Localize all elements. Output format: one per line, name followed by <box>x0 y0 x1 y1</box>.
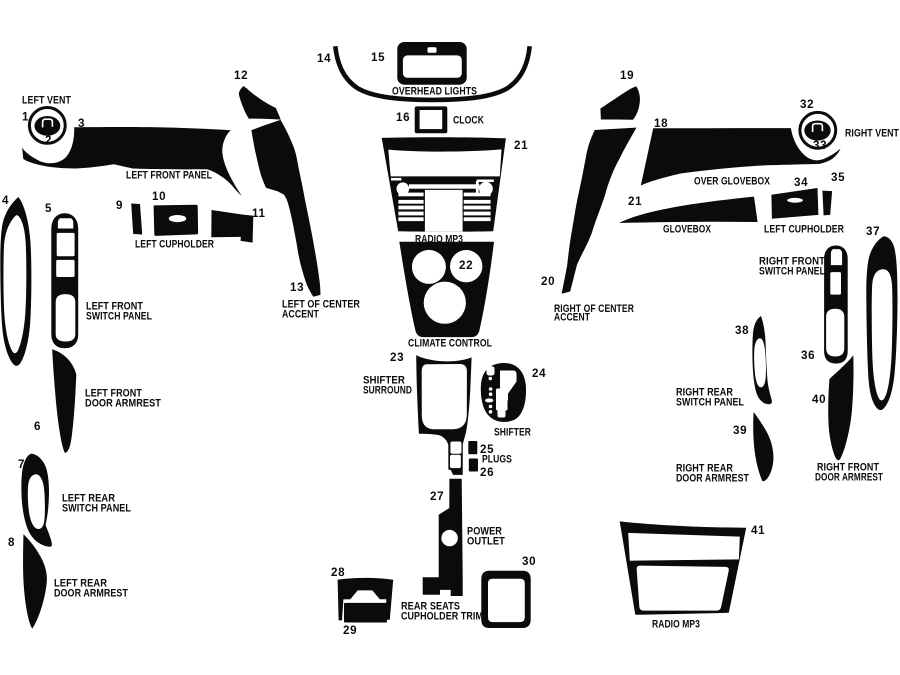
svg-text:25: 25 <box>480 443 494 456</box>
svg-text:RIGHT VENT: RIGHT VENT <box>845 128 899 140</box>
svg-text:39: 39 <box>733 424 747 437</box>
svg-text:16: 16 <box>396 111 410 124</box>
svg-text:6: 6 <box>34 420 41 433</box>
svg-text:8: 8 <box>8 536 15 549</box>
svg-text:27: 27 <box>430 490 444 503</box>
svg-text:LEFT CUPHOLDER: LEFT CUPHOLDER <box>764 224 844 236</box>
svg-text:LEFT CUPHOLDER: LEFT CUPHOLDER <box>135 239 214 251</box>
svg-text:SHIFTER: SHIFTER <box>494 427 531 439</box>
svg-text:RADIO MP3: RADIO MP3 <box>415 234 463 246</box>
svg-text:32: 32 <box>800 98 814 111</box>
svg-text:7: 7 <box>18 458 25 471</box>
svg-text:SWITCH PANEL: SWITCH PANEL <box>86 311 152 323</box>
svg-text:11: 11 <box>252 207 266 220</box>
svg-text:37: 37 <box>866 225 880 238</box>
svg-text:LEFT FRONT PANEL: LEFT FRONT PANEL <box>126 170 212 182</box>
svg-text:18: 18 <box>654 117 668 130</box>
svg-text:21: 21 <box>514 139 528 152</box>
svg-text:10: 10 <box>152 190 166 203</box>
svg-text:19: 19 <box>620 69 634 82</box>
svg-text:3: 3 <box>78 117 85 130</box>
svg-text:13: 13 <box>290 281 304 294</box>
svg-text:OUTLET: OUTLET <box>467 536 505 548</box>
svg-text:DOOR ARMREST: DOOR ARMREST <box>85 398 161 410</box>
svg-text:RADIO MP3: RADIO MP3 <box>652 619 700 631</box>
svg-text:20: 20 <box>541 275 555 288</box>
svg-text:14: 14 <box>317 52 331 65</box>
svg-text:12: 12 <box>234 69 248 82</box>
svg-text:40: 40 <box>812 393 826 406</box>
svg-text:OVERHEAD LIGHTS: OVERHEAD LIGHTS <box>392 86 477 98</box>
svg-text:26: 26 <box>480 466 494 479</box>
svg-text:24: 24 <box>532 367 546 380</box>
svg-text:36: 36 <box>801 349 815 362</box>
svg-text:SWITCH PANEL: SWITCH PANEL <box>676 397 744 409</box>
svg-text:LEFT VENT: LEFT VENT <box>22 95 71 107</box>
svg-text:38: 38 <box>735 324 749 337</box>
svg-text:41: 41 <box>751 524 765 537</box>
svg-text:DOOR ARMREST: DOOR ARMREST <box>54 588 128 600</box>
svg-text:33: 33 <box>813 139 827 152</box>
svg-text:4: 4 <box>2 194 9 207</box>
svg-text:21: 21 <box>628 195 642 208</box>
svg-text:SURROUND: SURROUND <box>363 385 412 397</box>
svg-text:35: 35 <box>831 171 845 184</box>
svg-text:15: 15 <box>371 51 385 64</box>
svg-text:5: 5 <box>45 202 52 215</box>
svg-text:30: 30 <box>522 555 536 568</box>
svg-text:CLIMATE CONTROL: CLIMATE CONTROL <box>408 338 492 350</box>
svg-text:2: 2 <box>45 134 52 147</box>
svg-text:9: 9 <box>116 199 123 212</box>
svg-text:34: 34 <box>794 176 808 189</box>
svg-text:22: 22 <box>459 259 473 272</box>
svg-text:1: 1 <box>22 110 29 123</box>
svg-text:DOOR ARMREST: DOOR ARMREST <box>815 472 883 484</box>
svg-text:DOOR ARMREST: DOOR ARMREST <box>676 473 749 485</box>
svg-text:CLOCK: CLOCK <box>453 115 484 127</box>
svg-text:ACCENT: ACCENT <box>282 309 319 321</box>
svg-text:SWITCH PANEL: SWITCH PANEL <box>62 503 131 515</box>
svg-text:23: 23 <box>390 351 404 364</box>
svg-text:28: 28 <box>331 566 345 579</box>
svg-text:CUPHOLDER TRIM: CUPHOLDER TRIM <box>401 611 483 623</box>
svg-text:29: 29 <box>343 624 357 637</box>
svg-text:ACCENT: ACCENT <box>554 311 590 323</box>
svg-text:OVER GLOVEBOX: OVER GLOVEBOX <box>694 176 770 188</box>
svg-text:GLOVEBOX: GLOVEBOX <box>663 224 711 236</box>
svg-text:SWITCH PANEL: SWITCH PANEL <box>759 266 825 278</box>
